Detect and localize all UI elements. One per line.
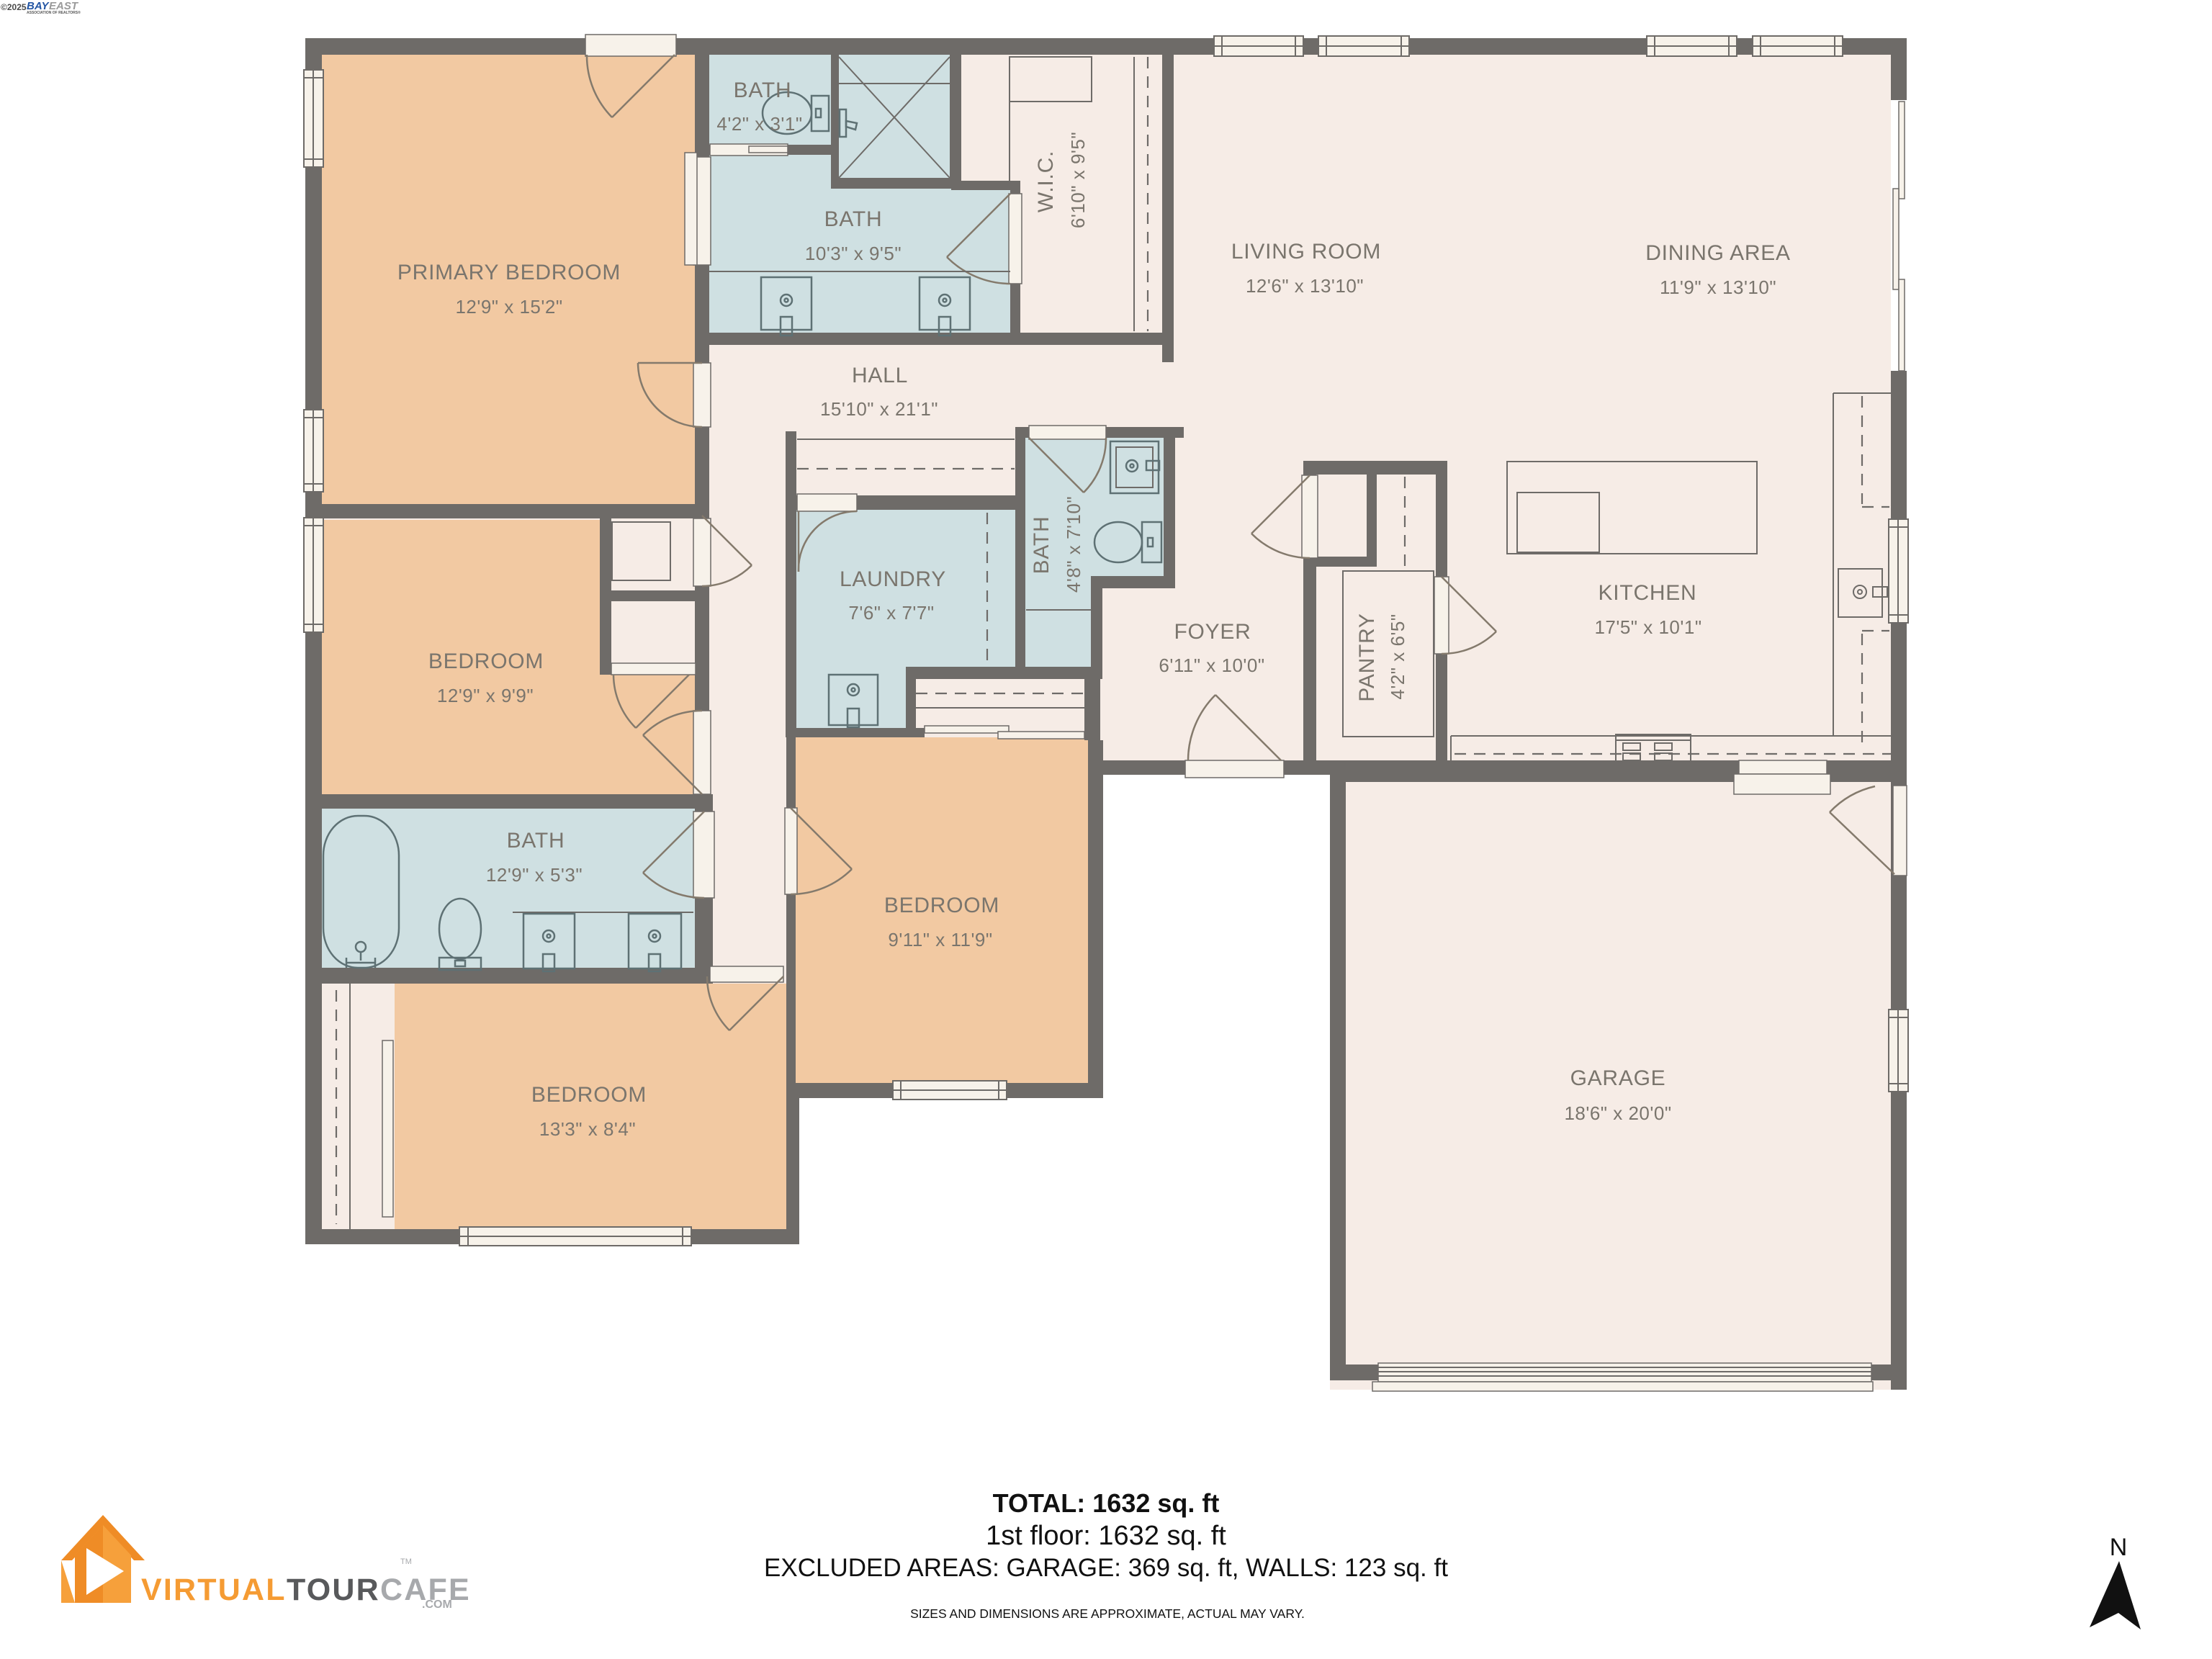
svg-text:GARAGE: GARAGE [1570, 1066, 1666, 1090]
svg-text:FOYER: FOYER [1174, 620, 1251, 644]
svg-text:12'6" x 13'10": 12'6" x 13'10" [1246, 275, 1364, 297]
svg-text:18'6" x 20'0": 18'6" x 20'0" [1564, 1102, 1671, 1124]
svg-text:BATH: BATH [1030, 516, 1053, 575]
svg-text:ASSOCIATION OF REALTORS®: ASSOCIATION OF REALTORS® [27, 10, 81, 15]
svg-text:SIZES AND DIMENSIONS ARE APPRO: SIZES AND DIMENSIONS ARE APPROXIMATE, AC… [910, 1606, 1305, 1621]
svg-text:6'10" x 9'5": 6'10" x 9'5" [1067, 132, 1089, 228]
svg-text:BATH: BATH [734, 78, 792, 102]
svg-text:PANTRY: PANTRY [1355, 613, 1379, 701]
svg-text:VIRTUAL: VIRTUAL [141, 1573, 287, 1607]
svg-text:BATH: BATH [507, 829, 565, 853]
svg-text:4'2" x 6'5": 4'2" x 6'5" [1387, 613, 1408, 699]
svg-text:PRIMARY BEDROOM: PRIMARY BEDROOM [397, 261, 621, 284]
svg-text:BEDROOM: BEDROOM [428, 649, 544, 673]
svg-text:.COM: .COM [422, 1599, 452, 1611]
svg-text:6'11" x 10'0": 6'11" x 10'0" [1159, 655, 1264, 676]
svg-text:TOUR: TOUR [287, 1573, 380, 1607]
svg-text:HALL: HALL [852, 364, 908, 387]
svg-text:KITCHEN: KITCHEN [1599, 581, 1697, 605]
svg-text:17'5" x 10'1": 17'5" x 10'1" [1594, 616, 1701, 638]
svg-text:TM: TM [400, 1557, 412, 1566]
svg-text:BEDROOM: BEDROOM [884, 894, 999, 917]
svg-text:7'6" x 7'7": 7'6" x 7'7" [848, 602, 934, 624]
svg-text:9'11" x 11'9": 9'11" x 11'9" [888, 929, 992, 950]
svg-text:1st floor: 1632 sq. ft: 1st floor: 1632 sq. ft [986, 1521, 1226, 1551]
svg-text:4'8" x 7'10": 4'8" x 7'10" [1063, 496, 1084, 593]
svg-text:EXCLUDED AREAS: GARAGE: 369 sq: EXCLUDED AREAS: GARAGE: 369 sq. ft, WALL… [764, 1554, 1448, 1582]
svg-text:15'10" x 21'1": 15'10" x 21'1" [820, 398, 938, 420]
svg-text:12'9" x 5'3": 12'9" x 5'3" [486, 864, 583, 886]
svg-text:N: N [2110, 1534, 2128, 1561]
svg-text:DINING AREA: DINING AREA [1645, 241, 1791, 265]
svg-text:12'9" x 15'2": 12'9" x 15'2" [455, 296, 562, 318]
svg-text:LIVING ROOM: LIVING ROOM [1231, 240, 1381, 264]
svg-text:©2025: ©2025 [1, 2, 27, 12]
svg-text:13'3" x 8'4": 13'3" x 8'4" [539, 1118, 636, 1140]
svg-text:10'3" x 9'5": 10'3" x 9'5" [805, 243, 902, 264]
svg-text:11'9" x 13'10": 11'9" x 13'10" [1660, 276, 1776, 298]
svg-text:4'2" x 3'1": 4'2" x 3'1" [716, 113, 802, 135]
svg-text:TOTAL: 1632 sq. ft: TOTAL: 1632 sq. ft [993, 1488, 1220, 1518]
svg-text:BEDROOM: BEDROOM [531, 1083, 647, 1107]
svg-text:W.I.C.: W.I.C. [1034, 150, 1058, 212]
svg-text:LAUNDRY: LAUNDRY [840, 567, 946, 591]
svg-text:12'9" x 9'9": 12'9" x 9'9" [437, 685, 534, 706]
svg-text:BATH: BATH [824, 207, 883, 231]
